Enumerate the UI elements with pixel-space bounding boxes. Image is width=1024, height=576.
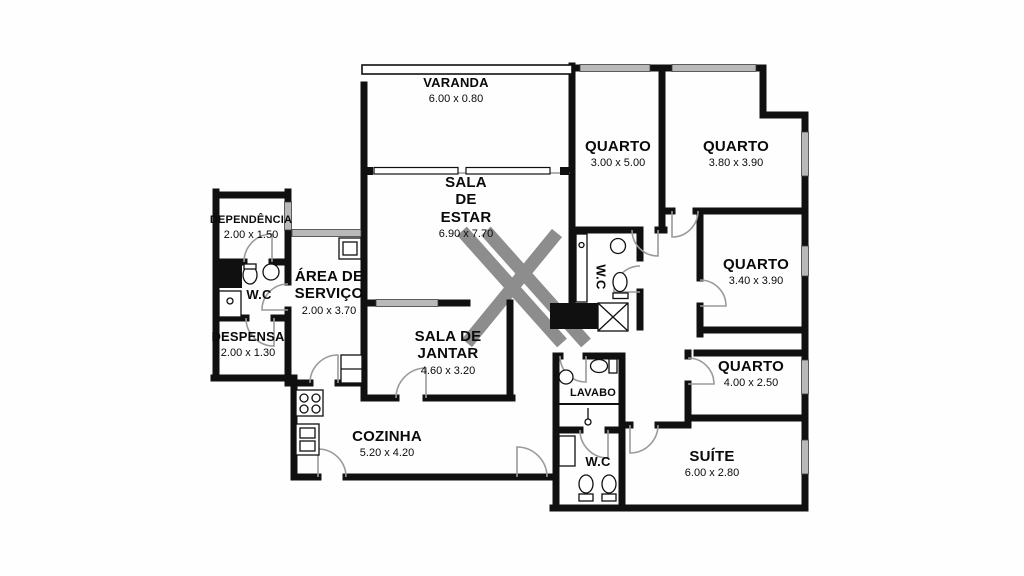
door-arc: [688, 358, 714, 384]
room-dims: 6.00 x 2.80: [685, 467, 739, 480]
room-label-varanda: VARANDA 6.00 x 0.80: [423, 76, 488, 106]
shower-tray-icon: [219, 291, 241, 317]
floor-plan: VARANDA 6.00 x 0.80 SALA DE ESTAR 6.90 x…: [0, 0, 1024, 576]
room-label-quarto-3: QUARTO 3.40 x 3.90: [723, 256, 789, 288]
room-name: W.C: [585, 455, 610, 470]
room-label-dependencia: DEPENDÊNCIA 2.00 x 1.50: [210, 214, 292, 241]
room-dims: 6.90 x 7.70: [439, 228, 493, 241]
door-arc: [517, 447, 547, 477]
room-label-despensa: DESPENSA 2.00 x 1.30: [211, 330, 284, 360]
room-dims: 3.40 x 3.90: [723, 275, 789, 288]
door-arc: [672, 211, 698, 237]
room-label-lavabo: LAVABO: [570, 387, 616, 400]
room-name: QUARTO: [718, 358, 784, 375]
room-label-quarto-4: QUARTO 4.00 x 2.50: [718, 358, 784, 390]
cabinet-icon: [559, 436, 575, 466]
door-arc: [310, 355, 338, 383]
room-dims: 2.00 x 1.50: [210, 229, 292, 242]
room-label-wc-dependencia: W.C: [246, 288, 271, 303]
room-label-sala-de-estar: SALA DE ESTAR 6.90 x 7.70: [439, 174, 493, 240]
room-name: LAVABO: [570, 387, 616, 400]
room-label-quarto-2: QUARTO 3.80 x 3.90: [703, 138, 769, 170]
room-dims: 2.00 x 3.70: [295, 305, 364, 318]
sink-icon: [559, 370, 573, 384]
shower-stall-icon: [598, 303, 628, 331]
toilet-icon: [591, 359, 618, 373]
floor-plan-drawing: [0, 0, 1024, 576]
cabinet-icon: [341, 355, 362, 383]
room-dims: 3.00 x 5.00: [585, 157, 651, 170]
door-arc: [632, 230, 658, 256]
stove-icon: [296, 390, 323, 416]
room-name: W.C: [593, 264, 608, 289]
toilet-icon: [579, 475, 593, 501]
kitchen-sink-icon: [296, 424, 319, 455]
room-label-wc-social: W.C: [593, 264, 608, 289]
room-label-area-de-servico: ÁREA DE SERVIÇO 2.00 x 3.70: [295, 268, 364, 317]
laundry-tank-icon: [339, 238, 361, 259]
sink-icon: [611, 239, 626, 254]
toilet-icon: [602, 475, 616, 501]
room-name: VARANDA: [423, 76, 488, 91]
room-name: COZINHA: [352, 428, 422, 445]
room-dims: 6.00 x 0.80: [423, 93, 488, 106]
room-label-wc-suite: W.C: [585, 455, 610, 470]
room-name: W.C: [246, 288, 271, 303]
room-dims: 2.00 x 1.30: [211, 347, 284, 360]
door-arc: [318, 449, 346, 477]
shower-column-icon: [576, 234, 587, 302]
closet-divider: [556, 404, 622, 425]
room-name: QUARTO: [723, 256, 789, 273]
room-dims: 4.00 x 2.50: [718, 377, 784, 390]
room-name: QUARTO: [703, 138, 769, 155]
toilet-icon: [243, 264, 257, 284]
room-label-quarto-1: QUARTO 3.00 x 5.00: [585, 138, 651, 170]
varanda-window-wall: [362, 65, 572, 74]
room-name: DEPENDÊNCIA: [210, 214, 292, 227]
room-dims: 4.60 x 3.20: [415, 365, 482, 378]
sink-icon: [263, 264, 279, 280]
room-name: SUÍTE: [685, 448, 739, 465]
toilet-icon: [613, 273, 628, 299]
room-name: QUARTO: [585, 138, 651, 155]
door-arc: [630, 425, 658, 453]
room-dims: 3.80 x 3.90: [703, 157, 769, 170]
room-label-sala-de-jantar: SALA DE JANTAR 4.60 x 3.20: [415, 328, 482, 377]
room-label-suite: SUÍTE 6.00 x 2.80: [685, 448, 739, 480]
room-label-cozinha: COZINHA 5.20 x 4.20: [352, 428, 422, 460]
room-dims: 5.20 x 4.20: [352, 447, 422, 460]
room-name: DESPENSA: [211, 330, 284, 345]
